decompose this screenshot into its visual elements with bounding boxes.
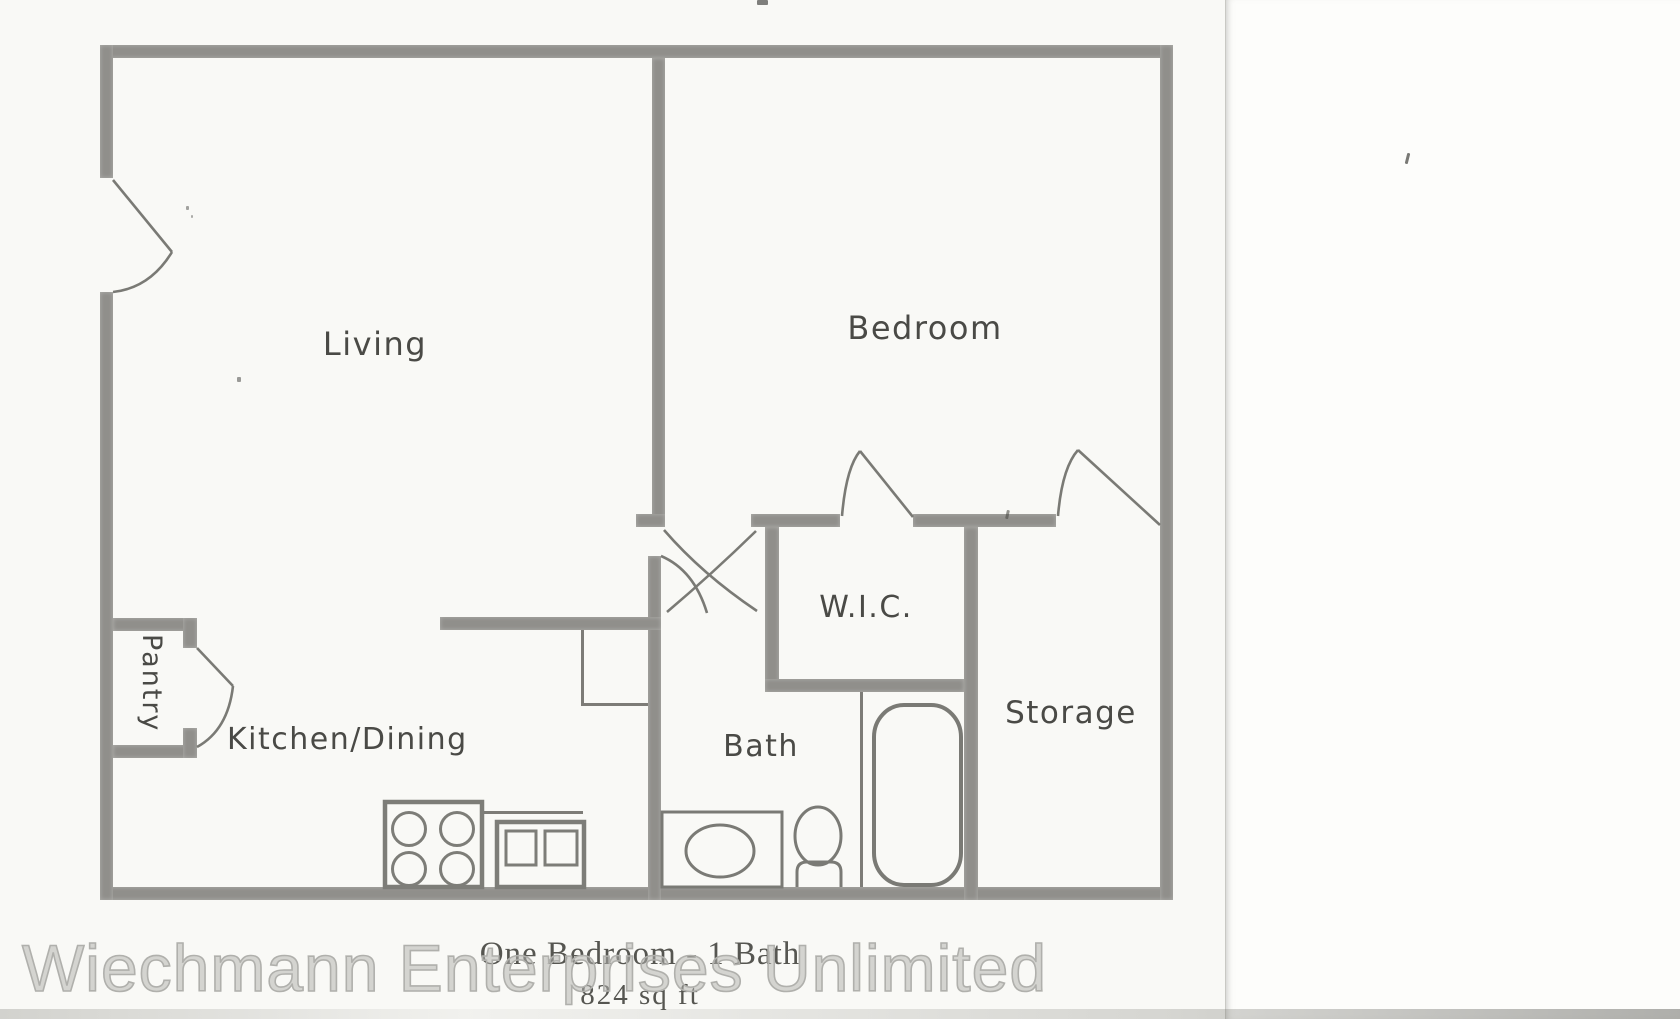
stove-burner (393, 853, 426, 886)
stove-burner (393, 813, 426, 846)
scanned-floor-plan-page: Living Bedroom W.I.C. Storage Bath Kitch… (0, 0, 1680, 1019)
pantry-door (197, 648, 233, 747)
doors-and-fixtures-layer (0, 0, 1680, 1019)
toilet (795, 807, 841, 887)
hall-doors (661, 530, 757, 613)
watermark-text: Wiechmann Enterprises Unlimited (22, 930, 1047, 1006)
stove (385, 802, 482, 887)
bathtub (874, 705, 961, 885)
stove-burner (441, 813, 474, 846)
entry-door (113, 180, 172, 292)
vanity-sink (662, 812, 782, 887)
stove-burner (441, 853, 474, 886)
storage-door (1058, 450, 1160, 525)
kitchen-sink (497, 822, 584, 887)
wic-door (842, 451, 913, 517)
